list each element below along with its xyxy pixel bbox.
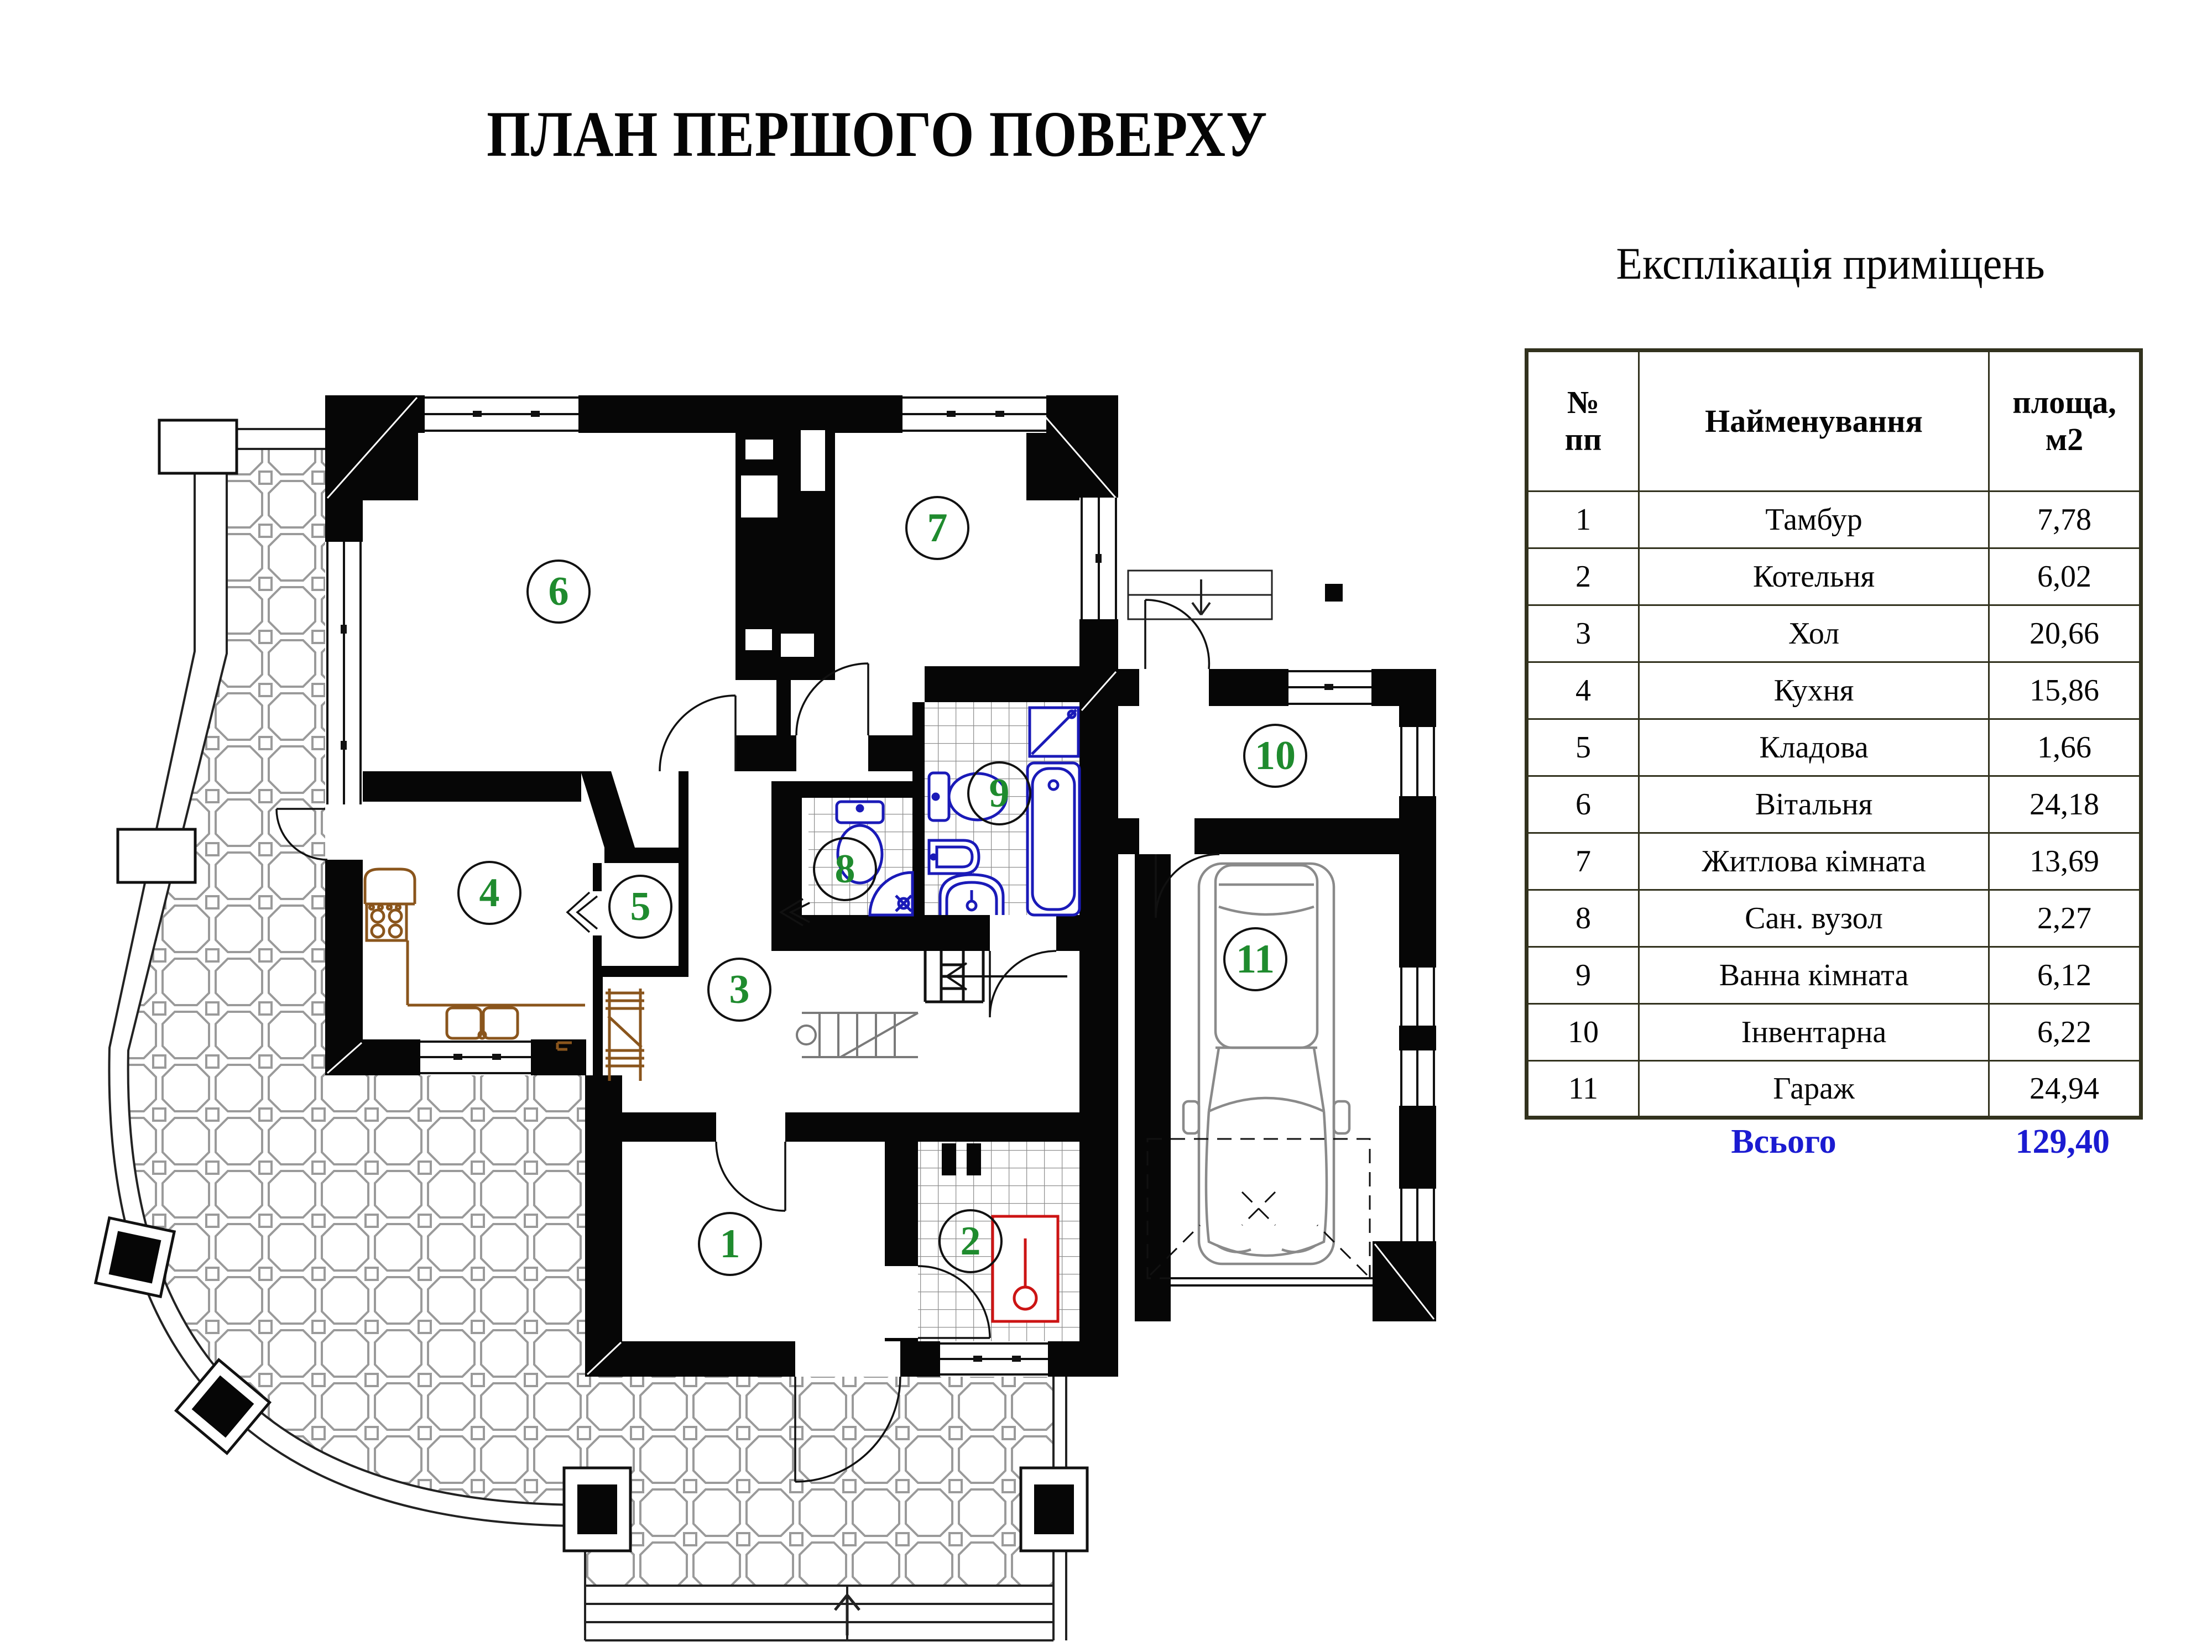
entry-steps — [585, 1586, 1053, 1640]
basin — [940, 875, 1003, 915]
explication-table: № пп Найменування площа, м2 1Тамбур7,782… — [1525, 348, 2143, 1120]
col-header-area: площа, м2 — [1989, 351, 2141, 492]
table-row: 6Вітальня24,18 — [1527, 776, 2141, 833]
terrace-post — [159, 420, 237, 473]
counter — [408, 940, 585, 1005]
porch-tiles — [585, 1377, 1053, 1586]
cell-name: Кухня — [1639, 662, 1989, 719]
room-number: 1 — [720, 1221, 740, 1267]
window — [1399, 1050, 1436, 1106]
window — [425, 395, 578, 433]
table-row: 11Гараж24,94 — [1527, 1061, 2141, 1118]
room-number: 10 — [1255, 733, 1296, 778]
room-marker-7: 7 — [906, 497, 968, 559]
room-number: 11 — [1236, 937, 1275, 982]
cell-num: 7 — [1527, 833, 1639, 890]
cell-num: 2 — [1527, 548, 1639, 605]
window — [420, 1039, 531, 1075]
table-row: 5Кладова1,66 — [1527, 719, 2141, 776]
door-room6 — [660, 696, 735, 771]
terrace-diamond-post — [96, 1218, 174, 1296]
table-row: 4Кухня15,86 — [1527, 662, 2141, 719]
cell-area: 20,66 — [1989, 605, 2141, 662]
cell-name: Вітальня — [1639, 776, 1989, 833]
room-number: 8 — [835, 846, 855, 892]
porch-post — [564, 1468, 630, 1551]
room-number: 5 — [630, 884, 651, 929]
bathtub — [1027, 763, 1079, 915]
cell-num: 5 — [1527, 719, 1639, 776]
table-row: 8Сан. вузол2,27 — [1527, 890, 2141, 947]
room-number: 9 — [989, 771, 1010, 816]
door-back — [1145, 600, 1209, 669]
bidet — [929, 840, 979, 874]
room-number: 3 — [729, 967, 750, 1012]
window — [1079, 498, 1118, 619]
room-marker-11: 11 — [1224, 928, 1286, 990]
room-marker-3: 3 — [708, 959, 770, 1021]
cell-name: Сан. вузол — [1639, 890, 1989, 947]
cell-num: 11 — [1527, 1061, 1639, 1118]
stair-to-upper — [925, 951, 1067, 1002]
window — [1399, 968, 1436, 1026]
room-number: 7 — [927, 505, 948, 551]
manifold — [967, 1143, 981, 1175]
total-row: Всього 129,40 — [1525, 1122, 2132, 1189]
window — [1399, 727, 1436, 796]
cell-num: 8 — [1527, 890, 1639, 947]
window — [1399, 1189, 1436, 1241]
cell-name: Ванна кімната — [1639, 947, 1989, 1004]
cell-area: 6,22 — [1989, 1004, 2141, 1061]
cell-num: 10 — [1527, 1004, 1639, 1061]
door-stairhall — [990, 951, 1056, 1017]
cell-name: Тамбур — [1639, 492, 1989, 548]
table-header-row: № пп Найменування площа, м2 — [1527, 351, 2141, 492]
back-arrow-icon — [1192, 579, 1210, 615]
entry-porch — [564, 1341, 1087, 1640]
cell-name: Гараж — [1639, 1061, 1989, 1118]
cell-area: 6,02 — [1989, 548, 2141, 605]
table-row: 10Інвентарна6,22 — [1527, 1004, 2141, 1061]
col-header-name: Найменування — [1639, 351, 1989, 492]
kitchen-arch-cabinet — [365, 869, 415, 904]
cell-num: 4 — [1527, 662, 1639, 719]
room-marker-6: 6 — [528, 561, 589, 623]
cell-num: 3 — [1527, 605, 1639, 662]
stair-arrow-icon — [947, 963, 1067, 990]
col-header-num: № пп — [1527, 351, 1639, 492]
window — [325, 542, 363, 838]
window — [902, 395, 1046, 433]
cell-area: 15,86 — [1989, 662, 2141, 719]
shower — [1030, 708, 1078, 756]
stove — [367, 904, 406, 940]
cell-name: Хол — [1639, 605, 1989, 662]
table-row: 7Житлова кімната13,69 — [1527, 833, 2141, 890]
room-marker-4: 4 — [458, 862, 520, 924]
total-label: Всього — [1731, 1122, 1836, 1162]
window — [1288, 669, 1371, 706]
door-room1 — [716, 1142, 785, 1211]
kitchen-sink — [447, 1008, 518, 1038]
cell-area: 2,27 — [1989, 890, 2141, 947]
window — [940, 1341, 1048, 1377]
total-value: 129,40 — [2016, 1122, 2110, 1162]
cell-area: 24,18 — [1989, 776, 2141, 833]
table-row: 2Котельня6,02 — [1527, 548, 2141, 605]
room-number: 4 — [479, 870, 500, 916]
cell-name: Житлова кімната — [1639, 833, 1989, 890]
table-row: 1Тамбур7,78 — [1527, 492, 2141, 548]
ladder — [606, 989, 644, 1081]
explication-title: Експлікація приміщень — [1542, 238, 2120, 290]
back-landing — [1128, 571, 1272, 619]
cell-num: 1 — [1527, 492, 1639, 548]
manifold — [942, 1143, 956, 1175]
cell-name: Котельня — [1639, 548, 1989, 605]
room-number: 6 — [549, 569, 569, 614]
room-marker-5: 5 — [609, 876, 671, 938]
room-marker-10: 10 — [1244, 725, 1306, 787]
terrace-post — [118, 829, 195, 882]
table-row: 3Хол20,66 — [1527, 605, 2141, 662]
cell-num: 9 — [1527, 947, 1639, 1004]
cell-area: 7,78 — [1989, 492, 2141, 548]
entry-arrow-icon — [835, 1595, 859, 1635]
room-marker-1: 1 — [699, 1213, 761, 1275]
page: ПЛАН ПЕРШОГО ПОВЕРХУ — [0, 0, 2212, 1652]
table-row: 9Ванна кімната6,12 — [1527, 947, 2141, 1004]
kitchen-fixtures — [365, 869, 585, 1049]
cell-area: 1,66 — [1989, 719, 2141, 776]
cell-name: Інвентарна — [1639, 1004, 1989, 1061]
garage — [1147, 864, 1373, 1285]
room-number: 2 — [961, 1219, 981, 1264]
cell-num: 6 — [1527, 776, 1639, 833]
cell-name: Кладова — [1639, 719, 1989, 776]
cell-area: 6,12 — [1989, 947, 2141, 1004]
fold-door-pantry — [567, 892, 597, 932]
car — [1183, 864, 1349, 1264]
cell-area: 13,69 — [1989, 833, 2141, 890]
stair-flight-gray — [797, 1013, 918, 1057]
cell-area: 24,94 — [1989, 1061, 2141, 1118]
porch-post — [1021, 1468, 1087, 1551]
